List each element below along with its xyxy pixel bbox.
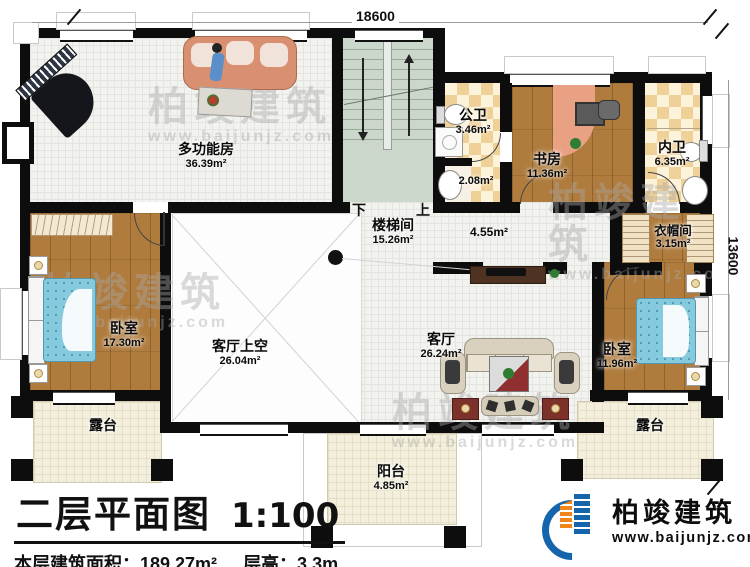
plan-info: 本层建筑面积：189.27m² 层高：3.3m [14, 550, 345, 567]
title-row: 二层平面图 1:100 [14, 484, 345, 544]
stair-label-up: 上 [416, 200, 430, 220]
company-logo: 柏竣建筑 www.baijunjz.com [540, 492, 750, 554]
wall [133, 28, 195, 38]
floor-terrace-right [577, 401, 714, 479]
logo-text: 柏竣建筑 www.baijunjz.com [612, 500, 750, 546]
pillow [486, 400, 499, 413]
nightstand [686, 274, 706, 293]
desk-chair [598, 100, 620, 120]
window-sill [0, 288, 22, 360]
wall [633, 83, 645, 213]
lamp [691, 372, 700, 381]
wardrobe [31, 214, 113, 236]
room-label-living: 客厅26.24m² [421, 332, 462, 360]
toilet [699, 140, 708, 162]
column [11, 459, 33, 481]
window [53, 390, 115, 405]
room-label-public-bath: 公卫3.46m² [456, 108, 491, 136]
floor-terrace-left [33, 401, 162, 483]
column [701, 396, 723, 418]
room-label-terrace-right: 露台 [636, 418, 664, 434]
plan-scale: 1:100 [231, 496, 339, 536]
washbasin [682, 176, 708, 205]
wall [332, 38, 343, 213]
wall [426, 422, 482, 433]
room-label-cloakroom: 衣帽间3.15m² [654, 224, 692, 250]
column [701, 459, 723, 481]
logo-building-blue [574, 494, 590, 536]
side-table [542, 398, 569, 420]
room-label-washbasin-area: 2.08m² [459, 175, 494, 187]
nightstand [686, 367, 706, 386]
wall [500, 162, 512, 213]
company-name: 柏竣建筑 [612, 500, 750, 527]
decor [461, 404, 470, 413]
room-label-multifunction: 多功能房36.39m² [178, 142, 234, 170]
room-label-hall: 4.55m² [470, 226, 508, 239]
bench [481, 396, 539, 416]
blanket [663, 305, 689, 357]
title-block: 二层平面图 1:100 本层建筑面积：189.27m² 层高：3.3m [14, 484, 345, 567]
floor-plan: 18600 13600 柏竣建筑 www.baijunjz.com 柏竣建筑 w… [0, 0, 750, 567]
floor-void-over-living [172, 213, 362, 424]
room-label-inner-bath: 内卫6.35m² [655, 140, 690, 168]
stair-arrow-down-head [358, 132, 368, 141]
dimension-top: 18600 [352, 8, 399, 24]
lamp [34, 369, 43, 378]
company-website: www.baijunjz.com [612, 531, 750, 546]
logo-swoosh [530, 488, 615, 567]
stair-arrow-up [408, 62, 410, 136]
bed [636, 298, 696, 364]
pillow [521, 399, 534, 412]
stair-arrow-up-head [404, 54, 414, 63]
dimension-right: 13600 [725, 233, 741, 280]
wall [20, 202, 133, 213]
decor [551, 404, 560, 413]
coffee-table-multifunction [197, 87, 252, 118]
stair-arrow-down [362, 58, 364, 134]
window [200, 422, 288, 436]
room-label-bedroom-right: 卧室11.96m² [597, 342, 637, 370]
wall [163, 422, 200, 433]
window [482, 422, 554, 436]
plant [570, 138, 581, 149]
wall [168, 202, 350, 213]
wall [445, 72, 510, 83]
blanket [62, 289, 92, 351]
wall [307, 28, 355, 38]
balcony-slider [360, 422, 426, 436]
cushion [445, 360, 460, 384]
bed [43, 278, 96, 362]
chimney-box [2, 122, 34, 164]
column [11, 396, 33, 418]
room-label-study: 书房11.36m² [527, 152, 567, 180]
door-leaf [163, 212, 165, 246]
pillow [504, 400, 516, 412]
bed-headboard [694, 296, 709, 366]
nightstand [29, 256, 48, 275]
nightstand [29, 364, 48, 383]
plant [550, 269, 559, 278]
wall [500, 83, 512, 132]
room-label-bedroom-left: 卧室17.30m² [104, 321, 145, 349]
person-head [212, 43, 222, 53]
corner-mark [13, 22, 39, 44]
window [60, 28, 133, 42]
sofa-multifunction [183, 36, 297, 90]
window [355, 28, 423, 42]
lamp [34, 261, 43, 270]
cushion [559, 360, 574, 384]
plan-title: 二层平面图 [16, 484, 211, 538]
window-sill [648, 56, 706, 74]
wall [554, 422, 604, 433]
tv [486, 268, 526, 276]
column [151, 459, 173, 481]
rug [489, 356, 529, 392]
room-label-balcony: 阳台4.85m² [374, 464, 409, 492]
lamp [691, 279, 700, 288]
wall [288, 422, 360, 433]
bath-divider [647, 128, 700, 129]
dimension-tick [715, 23, 729, 40]
armchair [554, 352, 580, 394]
room-label-stairwell: 楼梯间15.26m² [372, 218, 414, 246]
logo-icon [540, 492, 604, 554]
stair-label-down: 下 [352, 200, 366, 220]
sofa-cushion [226, 41, 254, 65]
chandelier [328, 250, 343, 265]
wall [20, 28, 30, 213]
wall [592, 262, 604, 402]
wall [433, 158, 472, 166]
room-label-terrace-left: 露台 [89, 418, 117, 434]
person [209, 52, 225, 81]
sofa-cushion [260, 43, 288, 67]
plant [503, 368, 514, 379]
wall [590, 390, 628, 401]
wall [610, 213, 622, 275]
washer-drum [442, 135, 457, 150]
flowers [207, 94, 220, 107]
wall [512, 202, 520, 213]
wall [160, 213, 171, 433]
window-sill [192, 12, 310, 30]
wardrobe [622, 214, 650, 263]
floor-height-text: 层高：3.3m [243, 550, 338, 567]
side-table [452, 398, 479, 420]
column [561, 459, 583, 481]
window-sill [504, 56, 614, 74]
column [444, 526, 466, 548]
floor-area-text: 本层建筑面积：189.27m² [14, 550, 217, 567]
window [628, 390, 688, 405]
room-label-void: 客厅上空26.04m² [212, 339, 268, 367]
dimension-tick [703, 9, 717, 26]
